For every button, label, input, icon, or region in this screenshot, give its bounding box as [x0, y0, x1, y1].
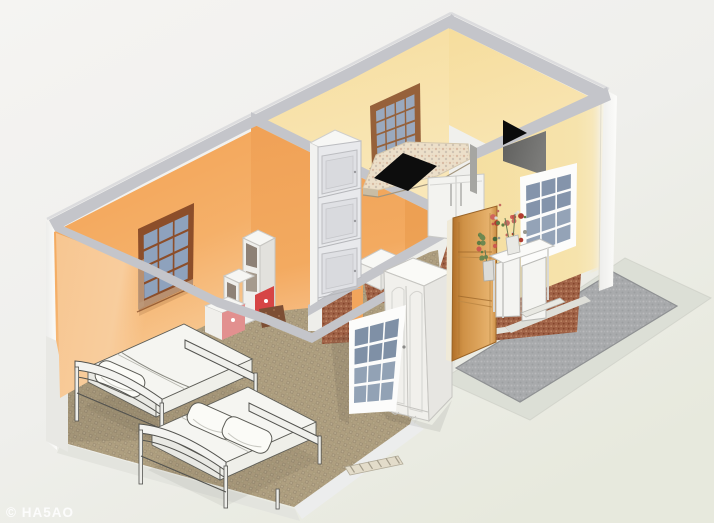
svg-text:© HA5AO: © HA5AO — [6, 505, 74, 520]
